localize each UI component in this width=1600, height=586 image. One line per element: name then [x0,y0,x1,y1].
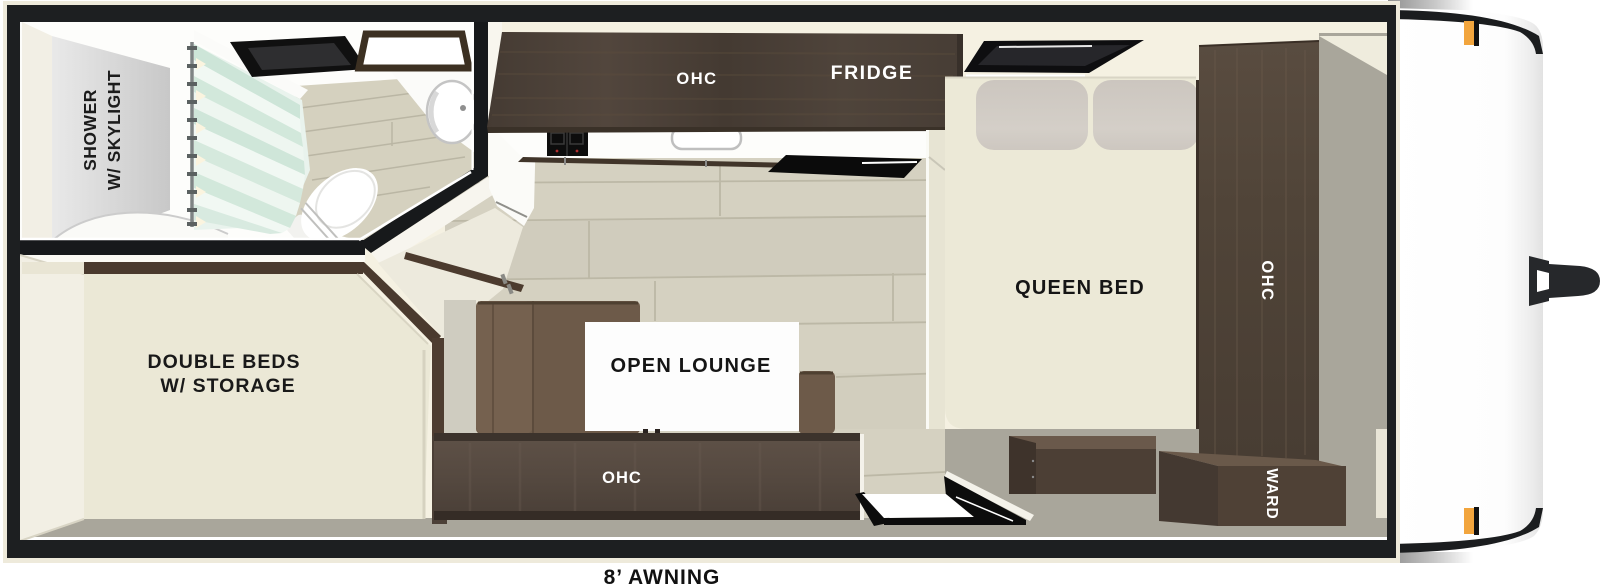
svg-text:DOUBLE BEDS: DOUBLE BEDS [148,351,301,373]
svg-text:SHOWER: SHOWER [80,89,100,171]
svg-text:WARD: WARD [1263,468,1280,519]
svg-text:QUEEN BED: QUEEN BED [1015,277,1145,299]
svg-text:OHC: OHC [602,469,642,487]
svg-text:W/ SKYLIGHT: W/ SKYLIGHT [104,70,124,190]
svg-text:OPEN LOUNGE: OPEN LOUNGE [611,355,772,377]
svg-text:8’ AWNING: 8’ AWNING [604,566,721,586]
svg-text:OHC: OHC [676,70,717,88]
svg-text:OHC: OHC [1258,260,1276,301]
svg-text:W/ STORAGE: W/ STORAGE [160,375,295,397]
svg-text:FRIDGE: FRIDGE [831,62,914,84]
